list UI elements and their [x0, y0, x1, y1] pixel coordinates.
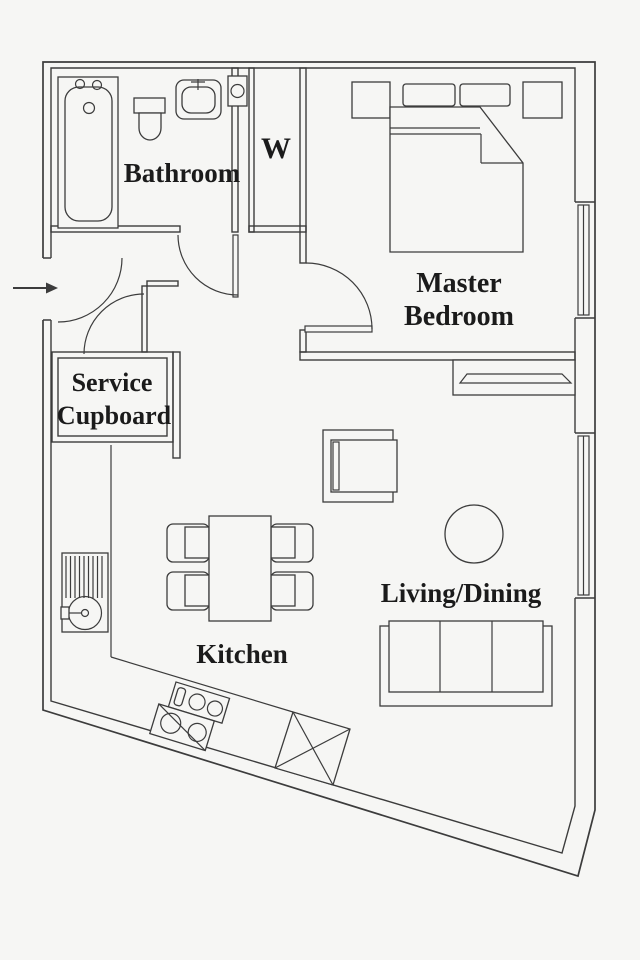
wardrobe-label: W	[261, 132, 291, 165]
sofa	[380, 621, 552, 706]
living-window	[578, 436, 589, 595]
sink-tap	[61, 607, 69, 619]
kitchen-label: Kitchen	[196, 639, 288, 669]
bedroom-door	[305, 263, 372, 332]
tv-unit	[323, 430, 397, 502]
hall-stub-wall-h	[147, 281, 178, 286]
radiator-shelf	[453, 360, 575, 395]
master-bedroom-label-line2: Bedroom	[404, 301, 514, 332]
floor-plan: Bathroom W Master Bedroom Service Cupboa…	[0, 0, 640, 960]
entrance-door-arc	[58, 258, 122, 322]
service-cupboard-door	[84, 294, 144, 354]
wardrobe-west-wall	[249, 68, 254, 232]
bedroom-south-wall	[300, 352, 575, 360]
round-table	[445, 505, 503, 563]
entrance-arrow-head	[46, 283, 58, 294]
sofa-cushions	[389, 621, 543, 692]
cupboard-right-wall	[173, 352, 180, 458]
bathroom-door	[178, 235, 238, 297]
bedroom-door-jamb	[300, 330, 306, 352]
bathroom-basin	[176, 79, 221, 119]
double-bed	[390, 84, 523, 252]
pillow	[403, 84, 455, 106]
bedside-table-left	[352, 82, 390, 118]
wardrobe-south-wall	[249, 226, 306, 232]
service-cupboard-label-line2: Cupboard	[57, 401, 172, 430]
dining-chair-top-right	[271, 524, 313, 562]
dining-chair-bottom-right	[271, 572, 313, 610]
hob	[150, 679, 230, 753]
dining-chair-top-left	[167, 524, 209, 562]
bedside-table-right	[523, 82, 562, 118]
kitchen-sink	[61, 553, 108, 632]
pillow	[460, 84, 510, 106]
dining-chair-bottom-left	[167, 572, 209, 610]
toilet	[134, 98, 165, 140]
service-cupboard-label-line1: Service	[72, 368, 153, 397]
bedroom-west-wall	[300, 68, 306, 263]
vent-box	[228, 76, 247, 106]
master-bedroom-label-line1: Master	[416, 268, 502, 299]
appliance-cross-box	[275, 712, 350, 785]
hall-stub-wall-v	[142, 286, 147, 352]
entrance	[13, 258, 122, 322]
living-dining-label: Living/Dining	[381, 578, 542, 608]
bedroom-window	[578, 205, 589, 315]
bathroom-label: Bathroom	[124, 158, 241, 188]
bathtub	[58, 77, 118, 228]
dining-table	[209, 516, 271, 621]
